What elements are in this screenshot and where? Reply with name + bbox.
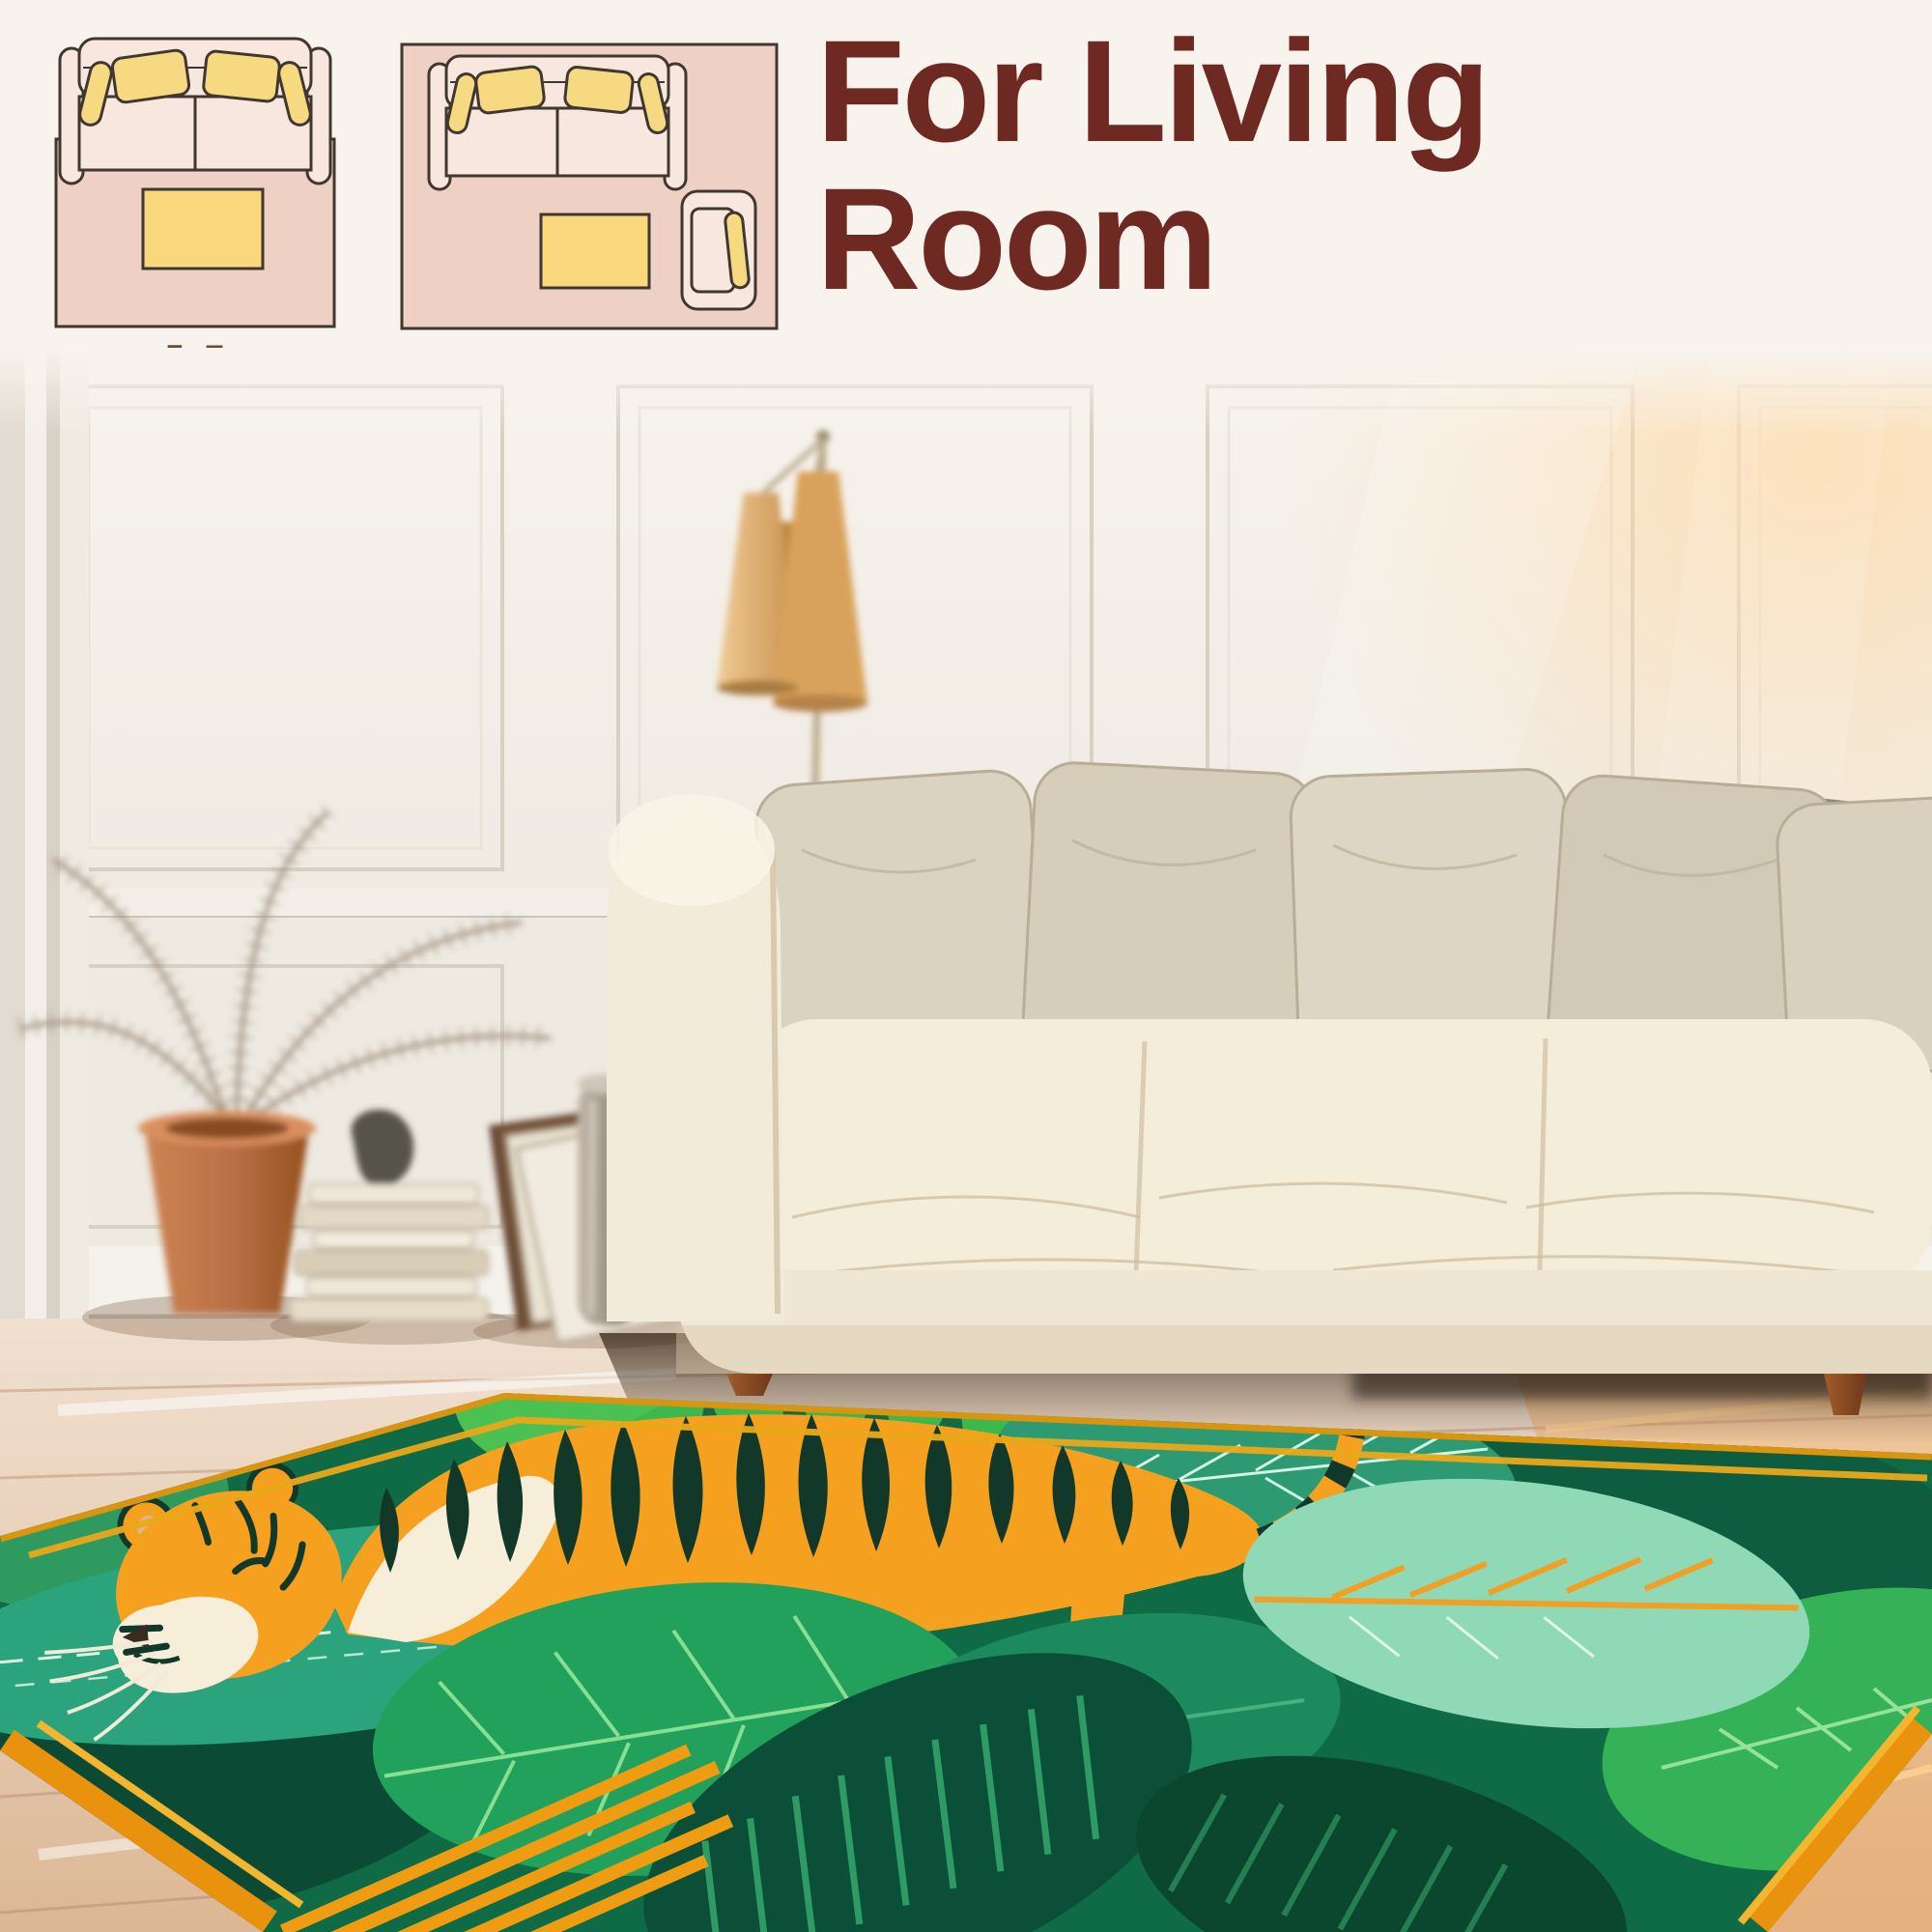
product-infographic: 5x7: [0, 0, 1932, 1932]
door-frame: [0, 348, 89, 1319]
size-guide-band: 5x7: [0, 0, 1932, 348]
stacked-books: [290, 1184, 488, 1321]
living-room-photo: [0, 348, 1932, 1932]
diagram-coffee-table: [541, 214, 649, 288]
diagram-armchair: [682, 191, 755, 309]
photo-top-fade: [0, 348, 1932, 435]
back-pillow-left: [475, 66, 546, 114]
living-room-scene: [0, 348, 1932, 1932]
lamp-shade-opening: [717, 680, 798, 696]
planter-soil: [165, 1118, 289, 1139]
back-pillow-right: [564, 67, 634, 114]
back-pillow-right: [203, 50, 280, 102]
armrest-highlight: [609, 794, 775, 906]
seat-cushion: [749, 1019, 1932, 1290]
terracotta-planter: [145, 1130, 309, 1314]
page-title: For Living Room: [816, 17, 1913, 313]
white-sofa: [607, 761, 1932, 1415]
rug-size-diagram-5x7: 5x7: [50, 33, 340, 379]
diagram-loveseat: [60, 39, 330, 184]
diagram-sofa: [429, 56, 686, 189]
sofa-armchair-rug-illustration: [396, 29, 782, 348]
diagram-coffee-table: [143, 189, 263, 269]
rug-size-diagram-8x10: 8x10: [396, 29, 782, 394]
back-pillow-left: [111, 49, 190, 103]
loveseat-rug-illustration: [50, 33, 340, 332]
lamp-shade-opening: [773, 695, 867, 712]
sofa-base-shading: [676, 1325, 1932, 1374]
